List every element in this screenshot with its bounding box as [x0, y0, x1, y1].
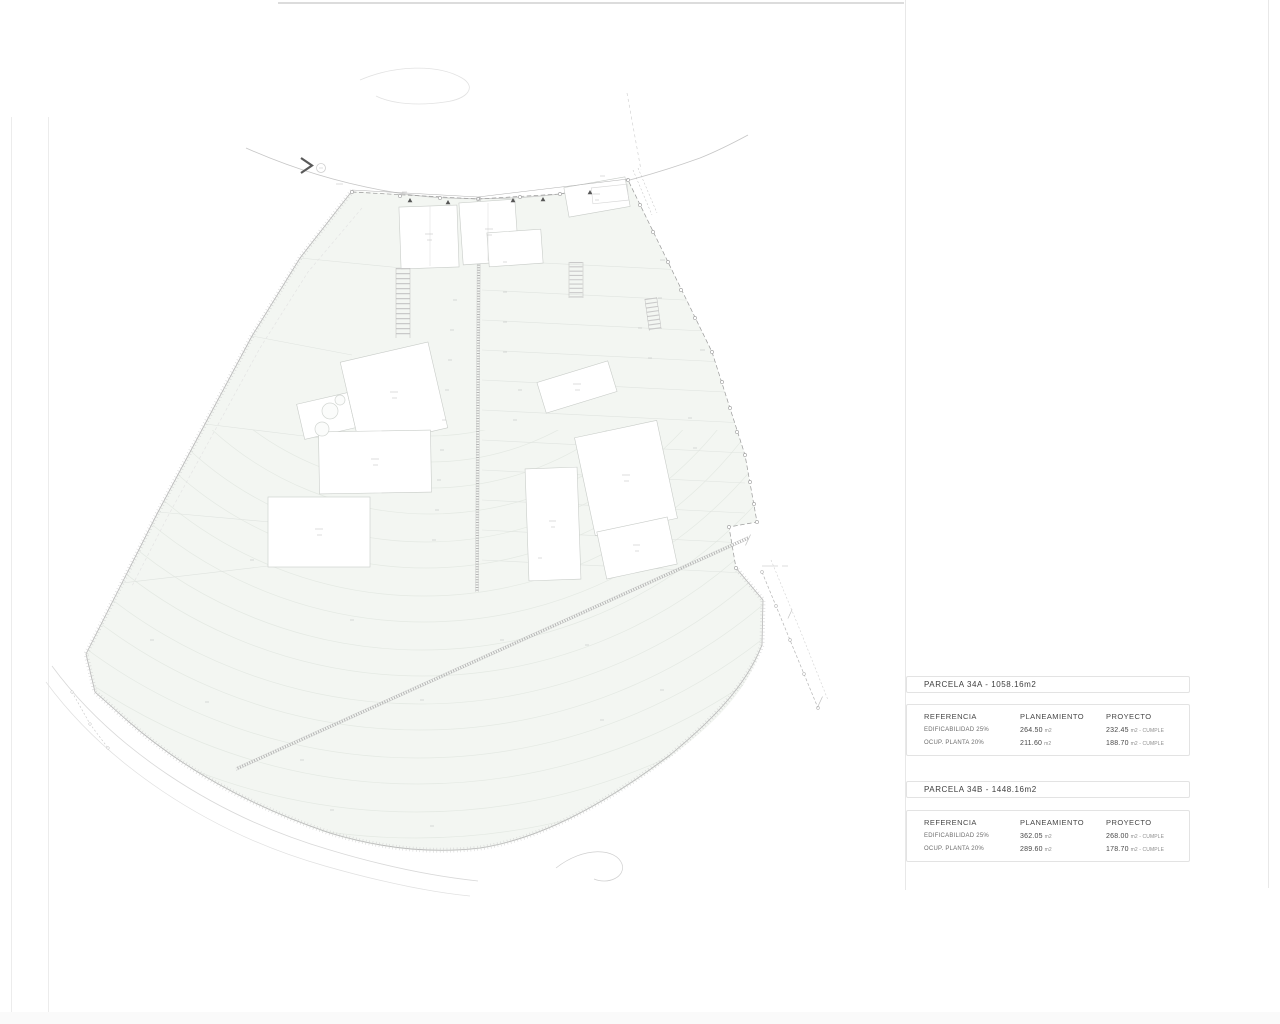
- plan-unit: m2: [1042, 741, 1051, 747]
- proj-unit: m2 - CUMPLE: [1129, 741, 1164, 747]
- plan-value: 264.50m2: [1020, 726, 1106, 736]
- row-label: OCUP. PLANTA 20%: [924, 739, 1020, 749]
- plan-unit: m2: [1043, 834, 1052, 840]
- col-header-planeamiento: PLANEAMIENTO: [1020, 712, 1106, 723]
- proj-unit: m2 - CUMPLE: [1129, 834, 1164, 840]
- row-label: OCUP. PLANTA 20%: [924, 845, 1020, 855]
- col-header-referencia: REFERENCIA: [924, 818, 1020, 829]
- parcela-34a-table[interactable]: REFERENCIA PLANEAMIENTO PROYECTO EDIFICA…: [906, 704, 1190, 756]
- proj-value: 188.70m2 - CUMPLE: [1106, 739, 1191, 749]
- row-label: EDIFICABILIDAD 25%: [924, 726, 1020, 736]
- plan-unit: m2: [1043, 728, 1052, 734]
- parcela-34b-title-bar[interactable]: PARCELA 34B - 1448.16m2: [906, 781, 1190, 798]
- north-arrow-icon[interactable]: [301, 158, 326, 173]
- plan-value: 362.05m2: [1020, 832, 1106, 842]
- col-header-planeamiento: PLANEAMIENTO: [1020, 818, 1106, 829]
- proj-value: 232.45m2 - CUMPLE: [1106, 726, 1191, 736]
- proj-unit: m2 - CUMPLE: [1129, 847, 1164, 853]
- col-header-proyecto: PROYECTO: [1106, 712, 1191, 723]
- parcela-34a-title: PARCELA 34A - 1058.16m2: [924, 680, 1036, 689]
- parcela-34b-title: PARCELA 34B - 1448.16m2: [924, 785, 1037, 794]
- row-label: EDIFICABILIDAD 25%: [924, 832, 1020, 842]
- proj-value: 268.00m2 - CUMPLE: [1106, 832, 1191, 842]
- plan-value: 211.60m2: [1020, 739, 1106, 749]
- parcela-34a-title-bar[interactable]: PARCELA 34A - 1058.16m2: [906, 676, 1190, 693]
- proj-unit: m2 - CUMPLE: [1129, 728, 1164, 734]
- site-plan-canvas[interactable]: [0, 0, 1280, 1024]
- plan-unit: m2: [1043, 847, 1052, 853]
- plan-value: 289.60m2: [1020, 845, 1106, 855]
- col-header-referencia: REFERENCIA: [924, 712, 1020, 723]
- parcela-34b-table[interactable]: REFERENCIA PLANEAMIENTO PROYECTO EDIFICA…: [906, 810, 1190, 862]
- col-header-proyecto: PROYECTO: [1106, 818, 1191, 829]
- proj-value: 178.70m2 - CUMPLE: [1106, 845, 1191, 855]
